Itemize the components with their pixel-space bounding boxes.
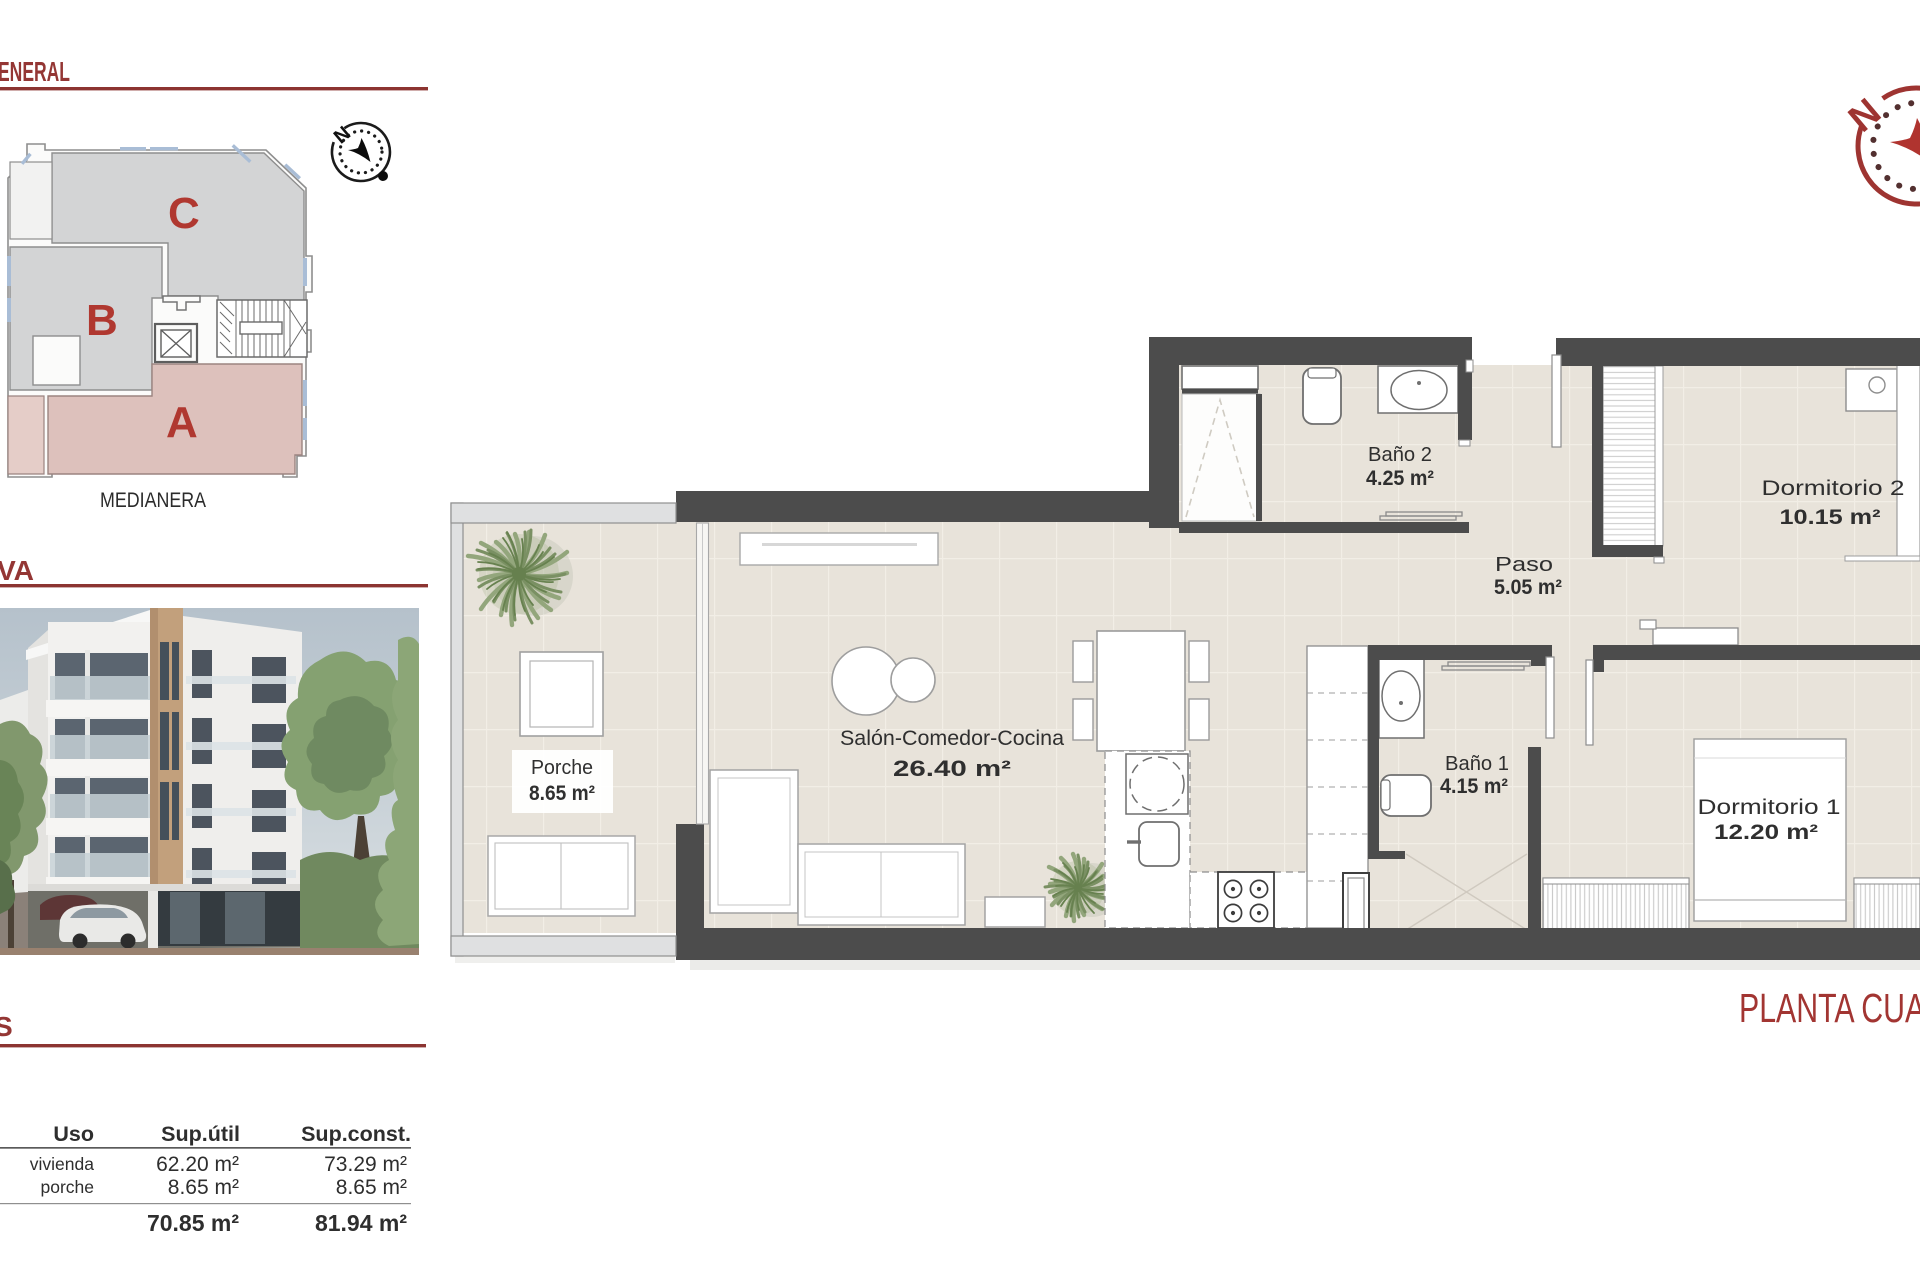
svg-text:Dormitorio 1: Dormitorio 1 [1698, 796, 1841, 819]
svg-text:vivienda: vivienda [30, 1154, 94, 1174]
svg-text:Baño 1: Baño 1 [1445, 752, 1509, 775]
svg-text:ENERAL: ENERAL [0, 56, 70, 87]
svg-text:C: C [168, 189, 200, 238]
svg-text:S: S [0, 1011, 13, 1042]
svg-text:B: B [86, 296, 118, 345]
svg-text:N: N [1841, 91, 1889, 141]
svg-text:Uso: Uso [53, 1122, 94, 1146]
svg-text:81.94 m²: 81.94 m² [315, 1210, 407, 1236]
svg-text:5.05 m²: 5.05 m² [1494, 576, 1562, 599]
svg-text:8.65 m²: 8.65 m² [336, 1176, 407, 1199]
svg-text:Baño 2: Baño 2 [1368, 443, 1432, 466]
svg-text:PLANTA CUARTA: PLANTA CUARTA [1739, 985, 1920, 1031]
svg-text:62.20 m²: 62.20 m² [156, 1153, 239, 1176]
svg-text:4.15 m²: 4.15 m² [1440, 775, 1508, 798]
svg-text:VA: VA [0, 555, 34, 586]
svg-text:4.25 m²: 4.25 m² [1366, 467, 1434, 490]
svg-text:A: A [166, 398, 198, 447]
svg-text:8.65 m²: 8.65 m² [529, 782, 595, 805]
svg-text:12.20 m²: 12.20 m² [1714, 821, 1818, 844]
svg-text:8.65 m²: 8.65 m² [168, 1176, 239, 1199]
svg-text:porche: porche [40, 1177, 94, 1197]
svg-text:10.15 m²: 10.15 m² [1780, 506, 1881, 529]
svg-text:Dormitorio 2: Dormitorio 2 [1762, 477, 1905, 500]
svg-text:Sup.const.: Sup.const. [301, 1122, 411, 1146]
svg-text:73.29 m²: 73.29 m² [324, 1153, 407, 1176]
svg-text:26.40 m²: 26.40 m² [893, 756, 1011, 781]
svg-text:Porche: Porche [531, 756, 593, 779]
svg-text:Salón-Comedor-Cocina: Salón-Comedor-Cocina [840, 726, 1064, 750]
svg-text:MEDIANERA: MEDIANERA [100, 489, 206, 512]
svg-text:Paso: Paso [1495, 553, 1553, 576]
svg-text:Sup.útil: Sup.útil [161, 1122, 240, 1146]
svg-text:70.85 m²: 70.85 m² [147, 1210, 239, 1236]
